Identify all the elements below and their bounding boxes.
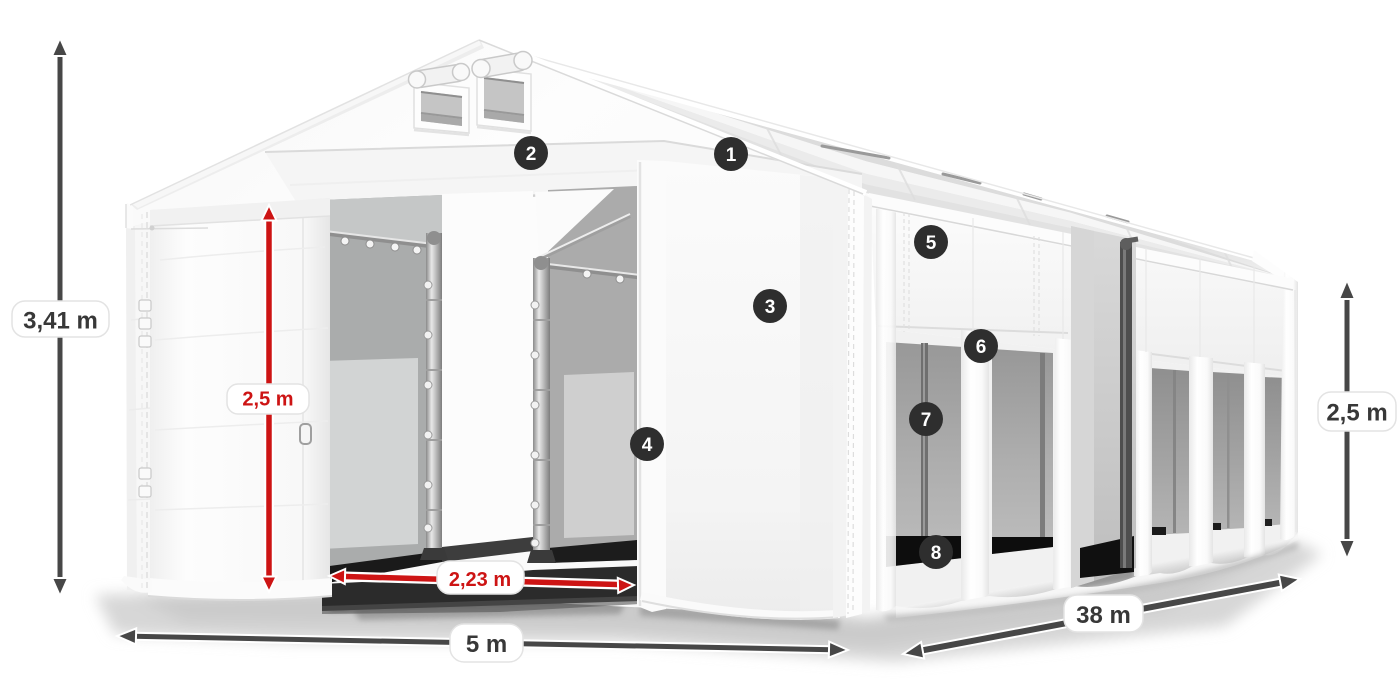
svg-text:3,41 m: 3,41 m	[23, 308, 98, 335]
svg-text:6: 6	[976, 337, 987, 358]
svg-text:1: 1	[726, 145, 737, 166]
svg-text:38 m: 38 m	[1076, 602, 1131, 629]
svg-text:2,5 m: 2,5 m	[242, 389, 293, 411]
svg-text:5 m: 5 m	[466, 631, 507, 658]
svg-text:3: 3	[765, 297, 776, 318]
svg-text:7: 7	[921, 410, 932, 431]
svg-text:8: 8	[931, 543, 942, 564]
svg-text:2,23 m: 2,23 m	[449, 569, 511, 591]
svg-text:2,5 m: 2,5 m	[1326, 400, 1387, 427]
svg-text:5: 5	[926, 233, 937, 254]
svg-text:4: 4	[642, 435, 653, 456]
svg-text:2: 2	[526, 144, 537, 165]
